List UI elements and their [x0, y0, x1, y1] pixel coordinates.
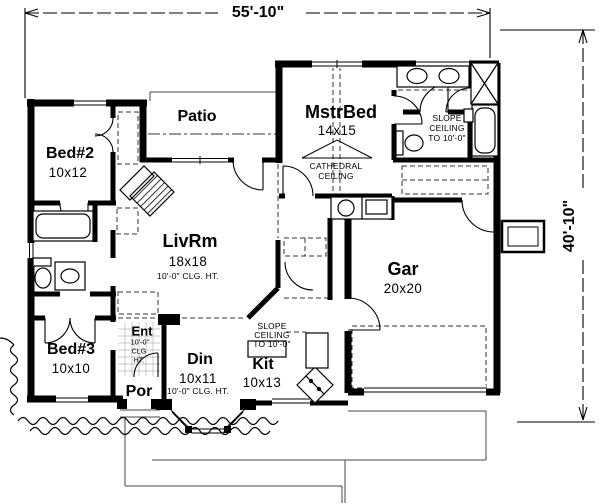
overall-width-dimension: 55'-10" — [229, 5, 287, 21]
ceiling-note-din: 10'-0" CLG. HT. — [167, 387, 229, 396]
room-label-bed3: Bed#3 — [47, 342, 95, 358]
cathedral-ceiling-triangle — [302, 140, 372, 158]
garage-storage-dash — [352, 326, 486, 388]
hall-bathtub-fixture — [33, 211, 93, 241]
master-toilet-fixture — [396, 131, 423, 155]
floor-plan-page: 55'-10" 40'-10" Patio Bed#2 10x12 MstrBe… — [0, 0, 600, 504]
room-label-ent: Ent — [132, 325, 153, 338]
garage-door — [364, 385, 486, 394]
slope-ceiling-bath-note-2: CEILING — [429, 124, 464, 133]
cathedral-ceiling-note-1: CATHEDRAL — [310, 162, 363, 171]
linen-closet-shelf — [117, 208, 138, 234]
laundry-counter-washer — [331, 197, 392, 219]
room-size-bed3: 10x10 — [52, 361, 91, 375]
room-label-gar: Gar — [387, 260, 418, 278]
room-size-mstrbed: 14x15 — [318, 123, 357, 137]
room-label-bed2: Bed#2 — [46, 146, 94, 162]
master-closet-shelves — [402, 166, 488, 194]
room-label-livrm: LivRm — [162, 232, 217, 250]
ceiling-note-ent-2: CLG — [132, 349, 147, 356]
ceiling-note-ent-3: HT. — [134, 358, 145, 365]
room-size-bed2: 10x12 — [49, 165, 88, 179]
fixtures — [33, 63, 544, 403]
exterior-bump-out — [502, 221, 544, 252]
overall-depth-dimension: 40'-10" — [562, 197, 578, 255]
hall-toilet-fixture — [33, 258, 51, 288]
floor-plan-drawing — [0, 0, 600, 504]
room-label-por: Por — [126, 384, 153, 400]
room-size-kit: 10x13 — [243, 375, 282, 389]
room-size-gar: 20x20 — [384, 281, 423, 295]
room-label-din: Din — [187, 352, 213, 368]
room-label-mstrbed: MstrBed — [305, 103, 377, 121]
slope-ceiling-bath-note-3: TO 10'-0" — [428, 134, 465, 143]
slope-ceiling-bath-note-1: SLOPE — [432, 114, 461, 123]
master-shower-fixture — [471, 63, 498, 104]
cathedral-ceiling-note-2: CEILING — [318, 172, 353, 181]
room-size-din: 10x11 — [179, 371, 217, 385]
hall-sink-fixture — [55, 262, 85, 290]
room-label-kit: Kit — [252, 357, 273, 373]
bed2-closet-shelf — [118, 112, 138, 164]
ceiling-note-ent-1: 10'-0" — [131, 340, 149, 347]
entry-closet-shelf — [118, 292, 158, 314]
hall-closet-shelves — [284, 238, 326, 256]
slope-ceiling-kit-note-3: TO 10'-0" — [253, 340, 290, 349]
master-vanity-sinks — [397, 66, 469, 87]
room-label-patio: Patio — [177, 109, 216, 125]
ceiling-note-livrm: 10'-0" CLG. HT. — [157, 272, 219, 281]
room-size-livrm: 18x18 — [169, 254, 208, 268]
